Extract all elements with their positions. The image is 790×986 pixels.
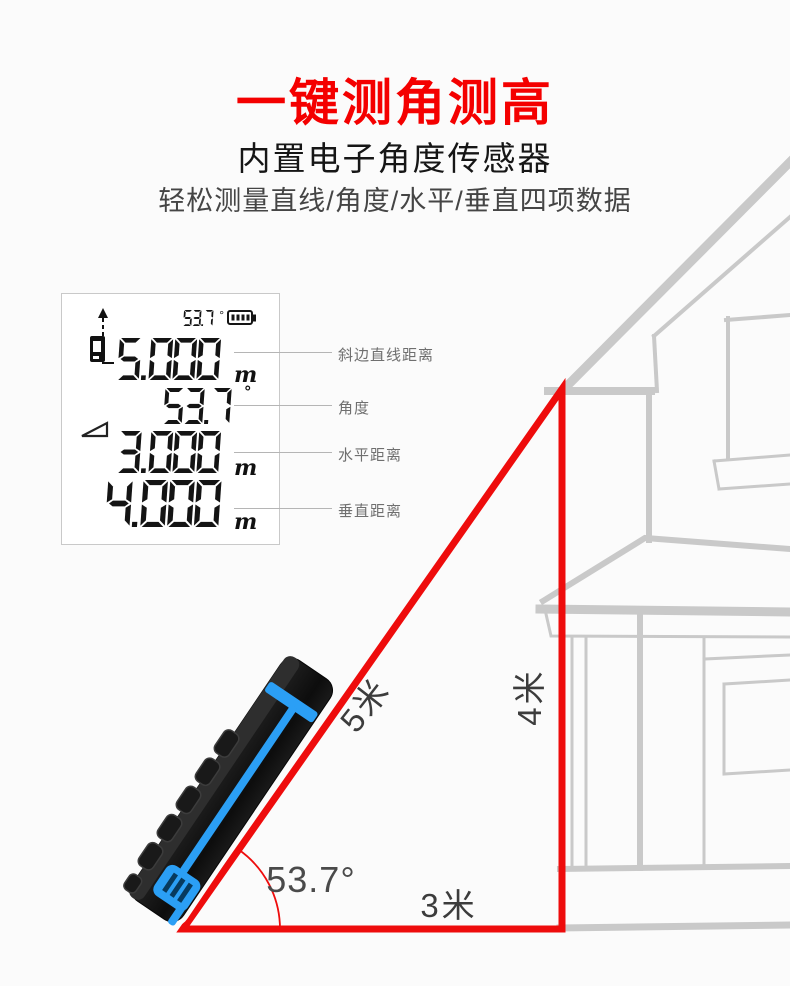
lcd-row-angle: °	[163, 388, 256, 429]
measurement-unit: m	[234, 512, 256, 532]
callout-line	[234, 452, 332, 453]
measurement-value	[117, 431, 224, 478]
status-angle-value	[183, 310, 216, 331]
callout-label-horizontal: 水平距离	[338, 444, 402, 465]
callout-line	[234, 508, 332, 509]
measurement-unit: °	[244, 386, 256, 398]
lcd-row-vertical: m	[105, 480, 256, 532]
label-horizontal-distance: 3米	[420, 887, 477, 924]
callout-line	[234, 405, 332, 406]
label-hypotenuse-length: 5米	[333, 671, 397, 739]
lcd-row-horizontal: m	[117, 431, 256, 478]
measurement-value	[163, 388, 234, 429]
device-rear-reference-icon	[88, 306, 118, 366]
measurement-value	[117, 338, 224, 385]
product-infographic: 一键测角测高 内置电子角度传感器 轻松测量直线/角度/水平/垂直四项数据	[0, 0, 790, 986]
measurement-unit: m	[234, 458, 256, 478]
angle-slope-icon	[80, 421, 110, 438]
house-illustration	[540, 162, 790, 928]
label-vertical-height: 4米	[511, 668, 548, 725]
callout-label-angle: 角度	[338, 397, 370, 418]
status-degree-symbol: °	[219, 310, 224, 320]
battery-icon	[227, 310, 257, 326]
callout-label-vertical: 垂直距离	[338, 500, 402, 521]
callout-line	[234, 352, 332, 353]
lcd-status: °	[183, 310, 257, 331]
lcd-row-hypotenuse: m	[117, 338, 256, 385]
callout-label-hypotenuse: 斜边直线距离	[338, 344, 434, 365]
label-angle-value: 53.7°	[266, 859, 355, 900]
measurement-value	[105, 480, 224, 532]
measurement-unit: m	[234, 365, 256, 385]
